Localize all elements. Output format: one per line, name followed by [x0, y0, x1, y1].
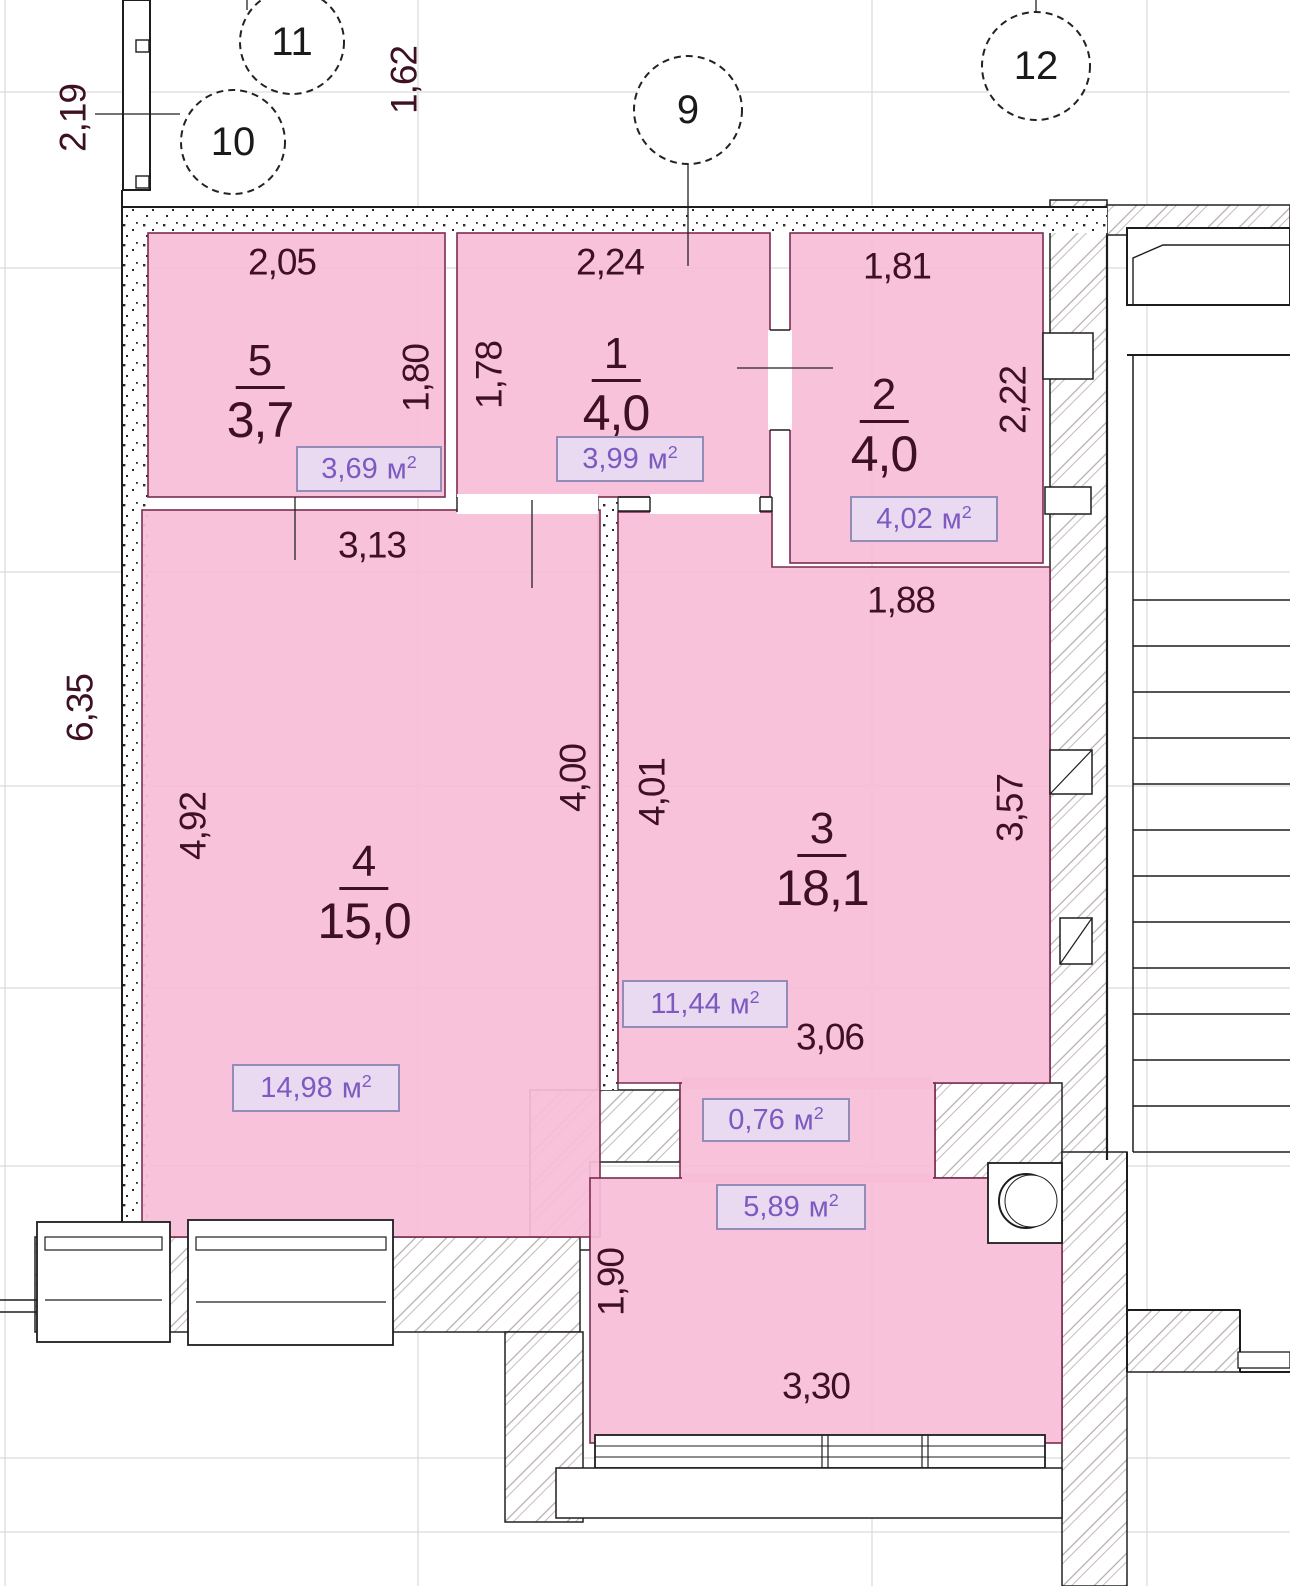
room-2-number: 2	[860, 373, 908, 423]
room-4-size: 15,0	[317, 896, 410, 946]
dim-1-80: 1,80	[398, 344, 435, 412]
axis-marker-10: 10	[211, 122, 256, 162]
dim-2-05: 2,05	[248, 244, 316, 281]
dim-6-35: 6,35	[62, 674, 99, 742]
area-label-passage: 0,76 м2	[702, 1098, 850, 1142]
area-label-room5: 3,69 м2	[296, 446, 442, 492]
area-label-lower-room: 5,89 м2	[716, 1184, 866, 1230]
dim-2-19: 2,19	[55, 84, 92, 152]
room-5-number: 5	[236, 339, 284, 389]
area-label-room1: 3,99 м2	[556, 436, 704, 482]
room-3-number: 3	[798, 807, 846, 857]
area-label-room3: 11,44 м2	[622, 980, 788, 1028]
dim-4-01: 4,01	[634, 758, 671, 826]
stair-treads	[1133, 600, 1290, 1152]
axis-marker-11: 11	[271, 22, 313, 62]
axis-marker-9: 9	[677, 90, 699, 130]
dim-4-92: 4,92	[175, 792, 212, 860]
fixture-washer	[988, 1163, 1062, 1243]
axis-marker-12: 12	[1014, 46, 1059, 86]
dim-1-62: 1,62	[386, 46, 423, 114]
room-3-size: 18,1	[775, 863, 868, 913]
dim-3-13: 3,13	[338, 527, 406, 564]
room-5-size: 3,7	[227, 395, 294, 445]
floor-plan-canvas: 10 11 9 12 2,19 1,62 2,05 2,24 1,81 1,80…	[0, 0, 1290, 1586]
room-3-label: 3 18,1	[775, 807, 868, 913]
dim-1-90: 1,90	[593, 1248, 630, 1316]
room-1-label: 1 4,0	[583, 332, 650, 438]
dim-1-78: 1,78	[471, 341, 508, 409]
dim-2-24: 2,24	[576, 244, 644, 281]
room-2-label: 2 4,0	[851, 373, 918, 479]
axis-circles	[181, 0, 1090, 194]
room-4-number: 4	[340, 840, 388, 890]
lower-window	[556, 1435, 1062, 1518]
area-label-room4: 14,98 м2	[232, 1064, 400, 1112]
stairwell	[1107, 228, 1290, 1372]
dim-3-30: 3,30	[782, 1368, 850, 1405]
dim-1-88: 1,88	[867, 582, 935, 619]
dim-1-81: 1,81	[863, 248, 931, 285]
room-4-label: 4 15,0	[317, 840, 410, 946]
dim-3-57: 3,57	[992, 774, 1029, 842]
dim-4-00: 4,00	[555, 744, 592, 812]
room-2-size: 4,0	[851, 429, 918, 479]
room-1-number: 1	[592, 332, 640, 382]
area-label-room2: 4,02 м2	[850, 496, 998, 542]
dim-3-06: 3,06	[796, 1019, 864, 1056]
exterior-wall-fragment	[123, 0, 150, 190]
room-5-label: 5 3,7	[227, 339, 294, 445]
balcony-windows	[0, 1220, 393, 1345]
room-1-size: 4,0	[583, 388, 650, 438]
dim-2-22: 2,22	[995, 366, 1032, 434]
